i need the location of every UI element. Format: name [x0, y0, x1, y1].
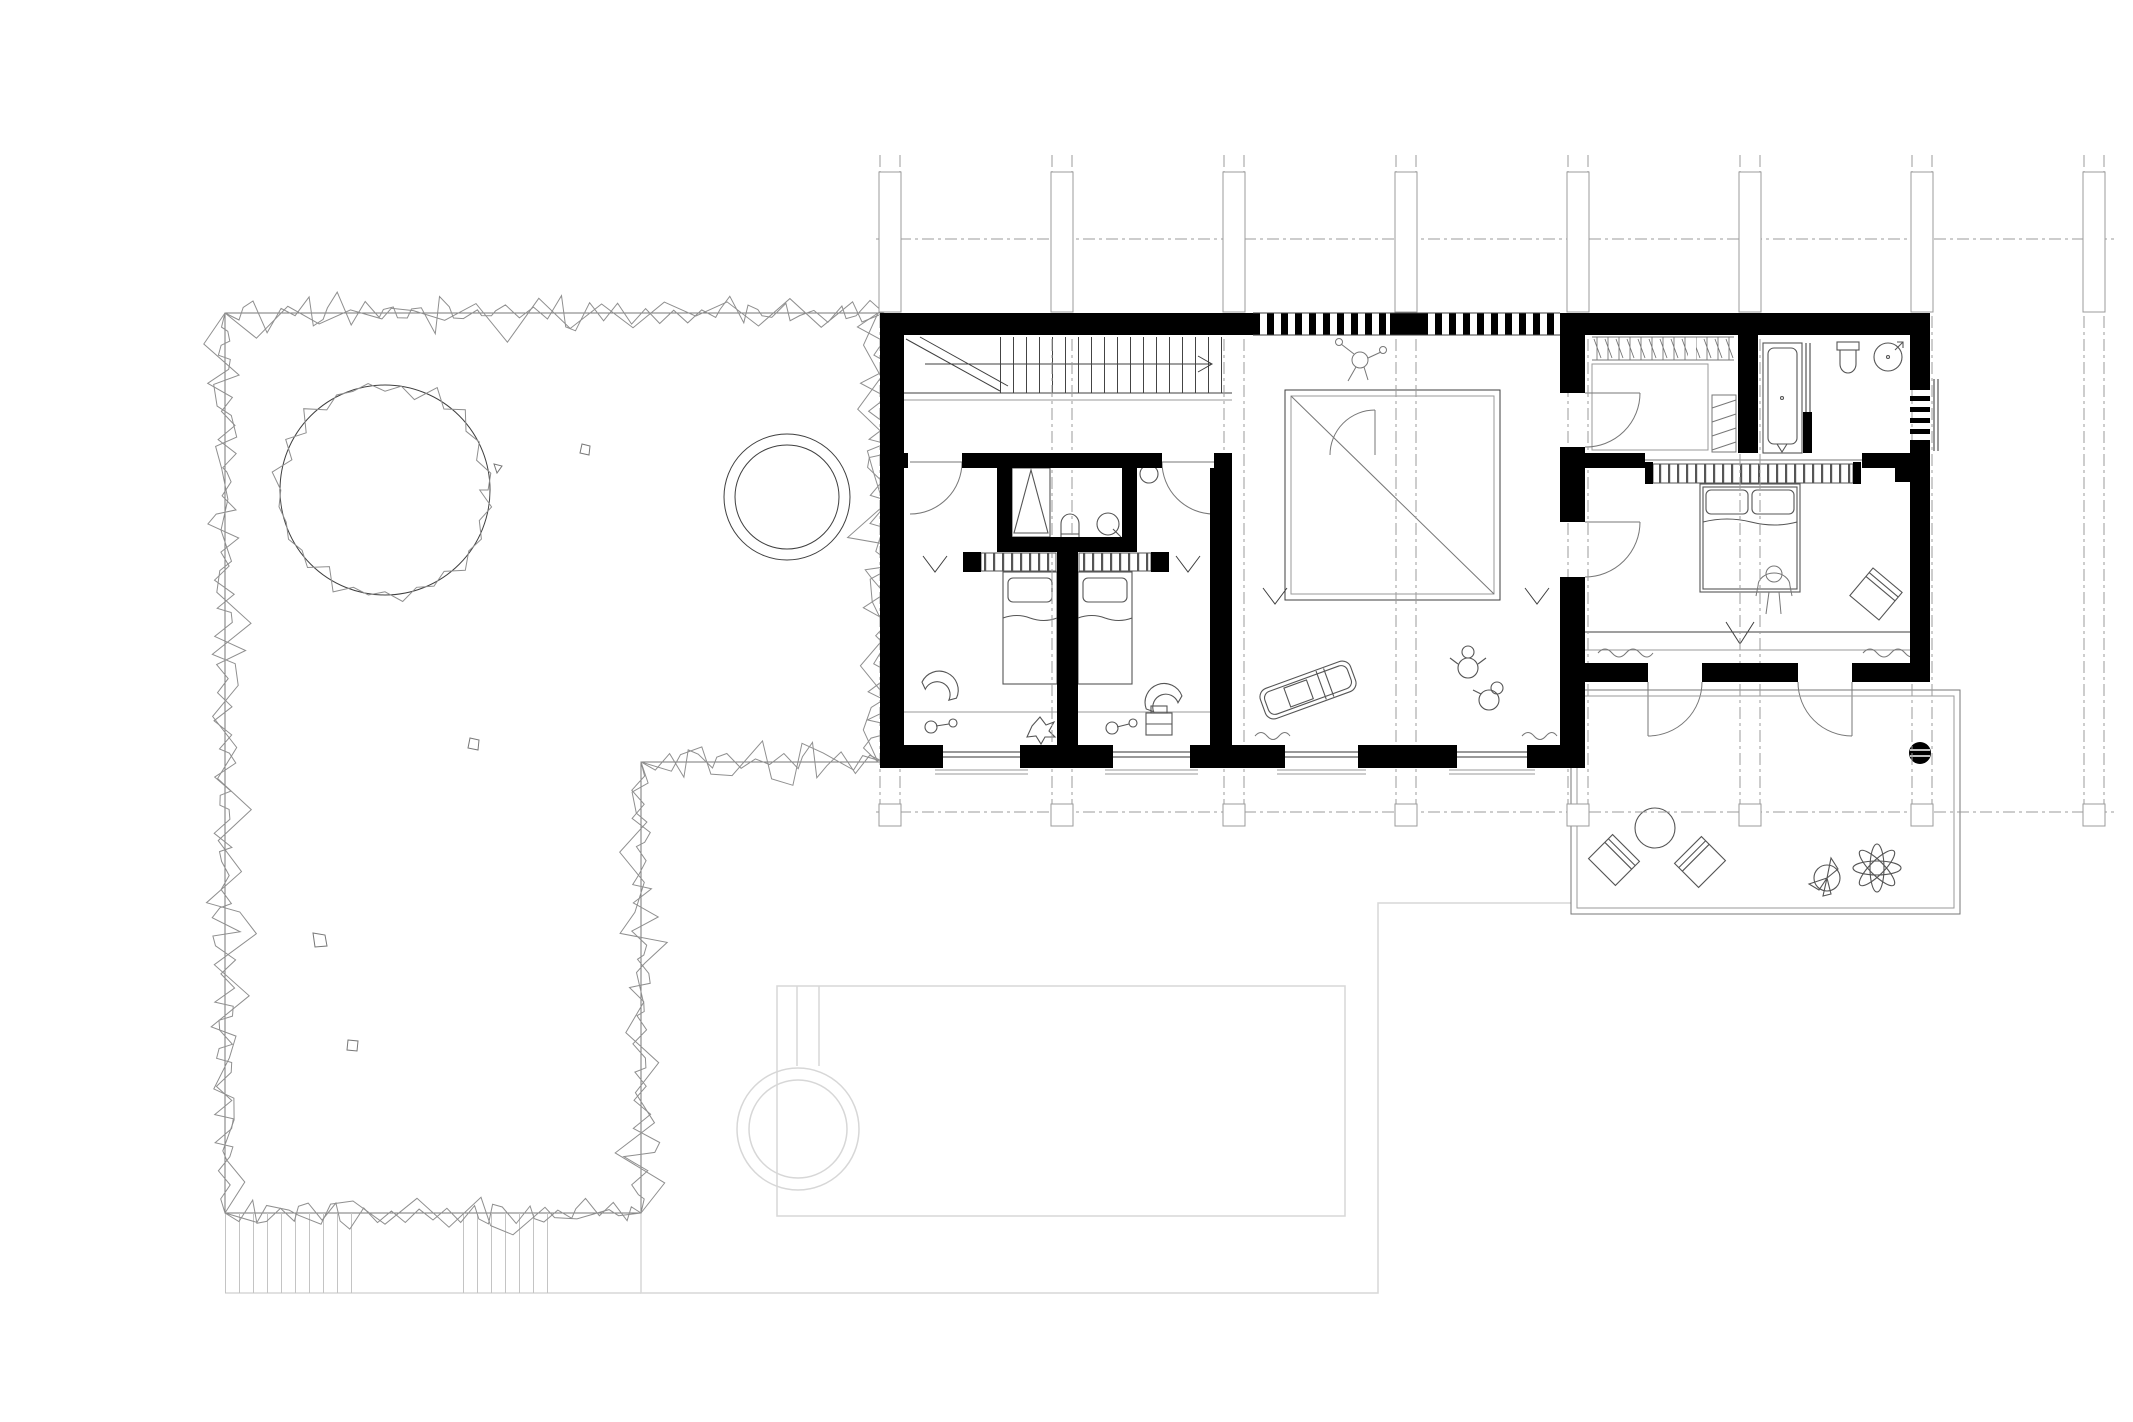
ghost-ground-floor	[225, 903, 1571, 1293]
kids-bathroom	[910, 462, 1214, 542]
wall-north	[880, 313, 1253, 335]
pillow	[1008, 578, 1052, 602]
potted-plant	[1853, 844, 1901, 892]
bathtub	[1763, 343, 1802, 453]
landing-door	[1330, 410, 1375, 455]
wall-east	[1910, 482, 1930, 682]
hedge-vegetation	[204, 292, 903, 1235]
wall-closet-bath	[1738, 332, 1758, 453]
ghost-pool	[777, 986, 1345, 1216]
tree-canopy-jag	[272, 384, 491, 602]
wall-east	[1910, 313, 1930, 385]
curtain	[1255, 733, 1557, 740]
terrace	[1571, 690, 1960, 914]
door	[910, 462, 962, 514]
play-area	[1257, 646, 1503, 721]
small-tree	[724, 434, 850, 560]
shower-screen	[1803, 343, 1812, 453]
shower	[1014, 470, 1048, 533]
wall-north-master	[1560, 313, 1930, 335]
standing-person	[1756, 566, 1792, 614]
hanging-rail	[1696, 337, 1734, 360]
chair	[920, 665, 965, 703]
round-table	[1635, 808, 1675, 848]
chair	[1850, 568, 1902, 620]
window-east-louvres	[1910, 385, 1930, 445]
garden-boundary	[225, 313, 884, 1213]
lounge-chair	[1589, 835, 1640, 886]
stair-break-line	[906, 339, 1000, 391]
toilet	[1837, 342, 1859, 373]
master-bathroom	[1763, 342, 1903, 453]
ghost-hot-tub-inner	[749, 1080, 847, 1178]
shelf-ladder	[1712, 395, 1736, 452]
blanket	[1003, 616, 1057, 621]
chair	[1140, 678, 1184, 714]
wall-playarea	[1210, 468, 1232, 745]
blanket	[1078, 616, 1132, 621]
children-bed	[1078, 572, 1132, 684]
door	[1585, 393, 1640, 447]
pillow	[1083, 578, 1127, 602]
ghost-ground-floor-outline	[641, 903, 1571, 1293]
louvre-band-north	[1253, 313, 1560, 335]
master-bed	[1700, 484, 1800, 592]
shower-round	[1874, 342, 1903, 371]
walk-in-closet	[1585, 337, 1736, 452]
garden-steps-hatch	[225, 1213, 360, 1293]
bedroom-1	[904, 572, 1057, 744]
window-east-glass	[1934, 379, 1938, 451]
potted-plant	[1809, 858, 1840, 896]
floor-plan-sheet	[0, 0, 2133, 1422]
garden	[204, 292, 903, 1293]
large-tree	[280, 385, 490, 595]
ghost-hot-tub	[737, 1068, 859, 1190]
open-void	[1285, 390, 1500, 600]
children-bed	[1003, 572, 1057, 684]
playing-children	[1450, 646, 1503, 710]
master-bedroom	[1585, 379, 1938, 736]
walking-person	[1336, 339, 1387, 382]
floor-plan-drawing	[0, 0, 2133, 1422]
toys	[1106, 706, 1172, 735]
washbasin	[1097, 513, 1121, 537]
wall-party	[1057, 545, 1078, 745]
small-tree-inner	[735, 445, 839, 549]
wardrobe	[1653, 464, 1853, 483]
toy-car	[1257, 659, 1358, 722]
garden-rocks	[313, 444, 590, 1051]
wall-west	[880, 313, 904, 768]
door	[1585, 522, 1640, 577]
stair-break-line	[920, 337, 1008, 386]
toys	[925, 717, 1055, 744]
hanging-rail	[1592, 337, 1688, 360]
bedroom-2	[1078, 572, 1210, 735]
lounge-chair	[1675, 837, 1726, 888]
door	[1162, 462, 1214, 514]
garden-steps-hatch	[450, 1213, 560, 1293]
